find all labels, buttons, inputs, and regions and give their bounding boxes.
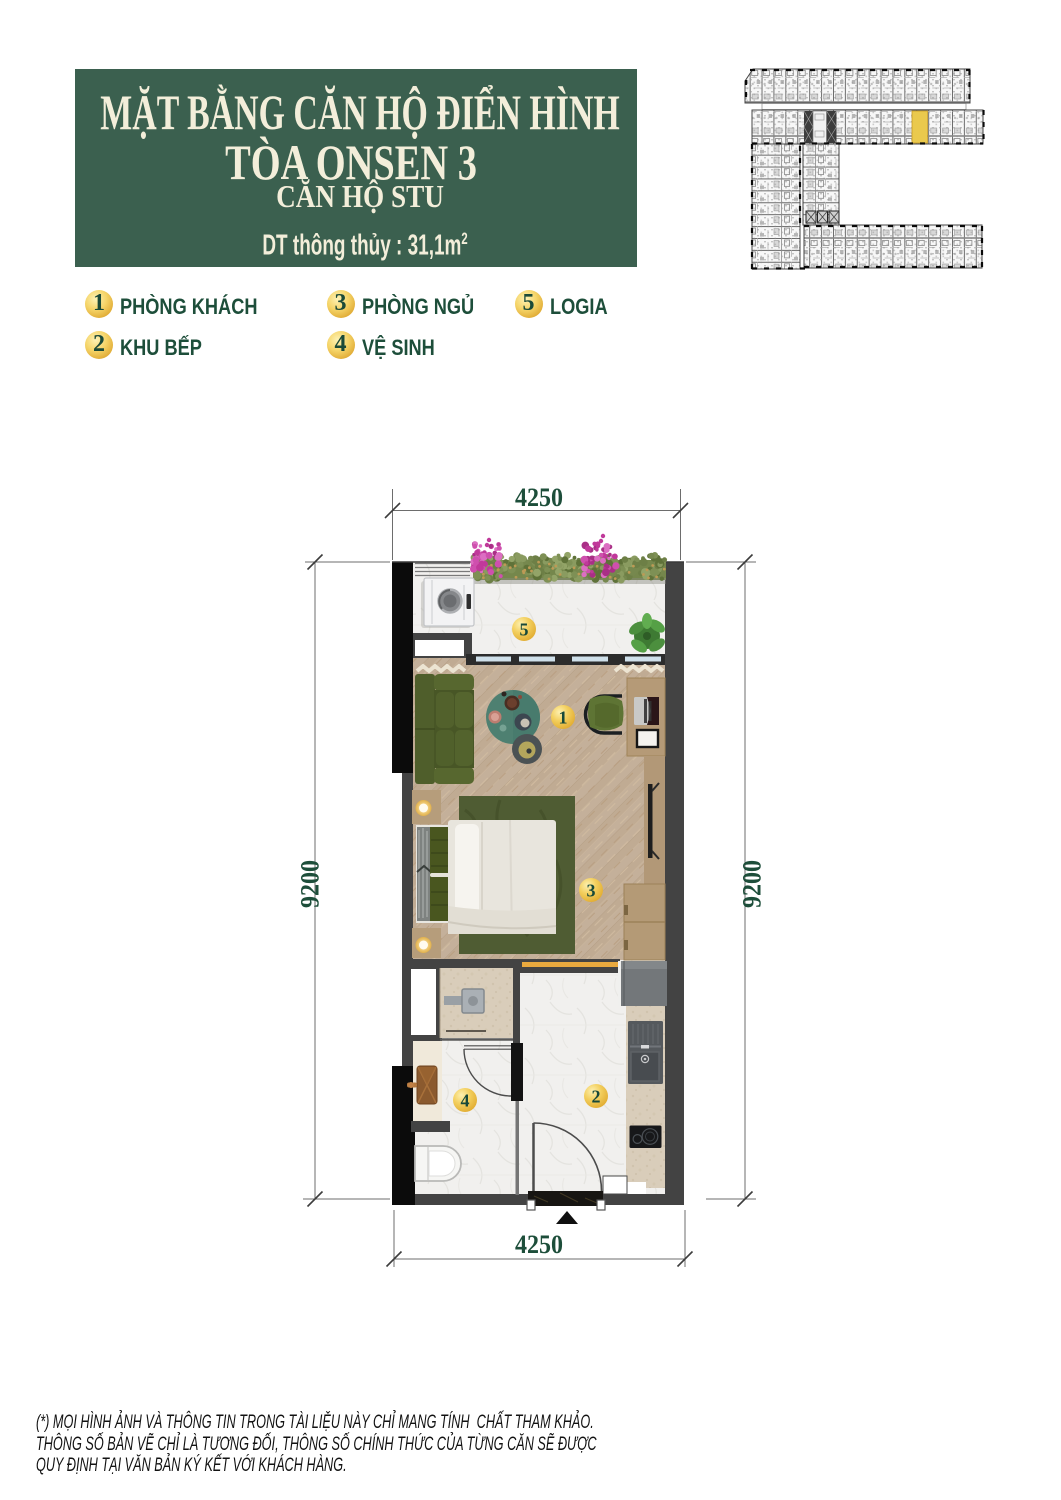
svg-text:9200: 9200 xyxy=(737,860,766,908)
svg-text:4250: 4250 xyxy=(515,483,563,512)
svg-text:5: 5 xyxy=(520,620,529,640)
svg-text:9200: 9200 xyxy=(295,860,324,908)
svg-text:2: 2 xyxy=(592,1087,601,1107)
svg-text:3: 3 xyxy=(587,881,596,901)
svg-text:4: 4 xyxy=(461,1091,470,1111)
svg-text:4250: 4250 xyxy=(515,1230,563,1259)
svg-text:1: 1 xyxy=(559,708,568,728)
